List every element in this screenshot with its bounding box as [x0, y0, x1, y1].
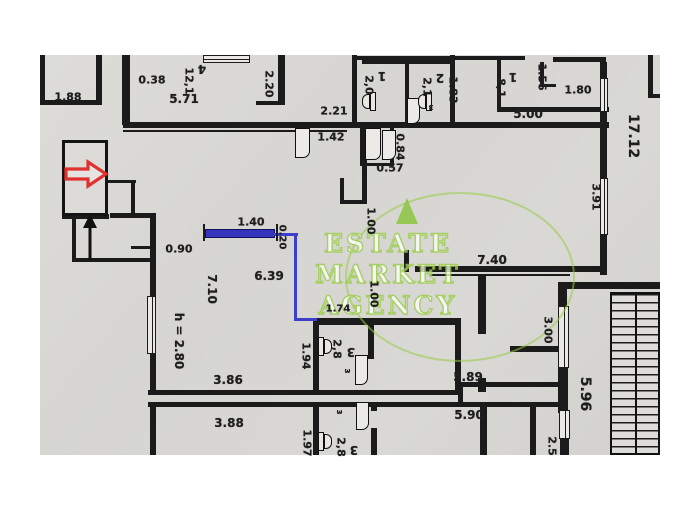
dimension-label: 5.96 — [577, 377, 593, 412]
dimension-label: 0.38 — [138, 74, 165, 87]
room-area-label: 8,1 — [495, 78, 508, 98]
dimension-label: 1.88 — [54, 91, 81, 104]
toilet-icon — [317, 431, 331, 451]
watermark-logo-icon — [396, 198, 418, 224]
dimension-label: 7.40 — [477, 253, 507, 267]
room-area-label: 2,8 — [331, 339, 344, 359]
wall-segment — [371, 428, 377, 455]
glyph-label: ɜ — [429, 102, 434, 112]
room-number-label: 1 — [509, 70, 517, 84]
wall-segment — [340, 178, 344, 202]
room-number-label: 1 — [378, 69, 386, 83]
wall-segment — [148, 390, 460, 395]
room-area-label: 2,0 — [363, 75, 376, 95]
dimension-label: 3.86 — [213, 373, 243, 387]
dimension-label: 0.20 — [277, 225, 288, 250]
dimension-label: 5.89 — [453, 370, 483, 384]
watermark-circle — [345, 192, 575, 362]
wall-segment — [131, 246, 152, 249]
dimension-label: 1.00 — [368, 280, 381, 307]
window — [559, 410, 570, 439]
entrance-arrow-icon — [63, 159, 109, 189]
blue-line — [294, 318, 317, 321]
dimension-label: 1.97 — [301, 429, 314, 456]
wall-segment — [278, 55, 285, 105]
room-number-label: 2 — [436, 71, 444, 85]
glyph-label: ɜ — [342, 369, 352, 374]
room-number-label: 3 — [347, 345, 355, 359]
room-area-label: 12,1 — [183, 67, 196, 94]
window — [203, 55, 250, 63]
dimension-label: 1.00 — [365, 207, 378, 234]
wall-segment — [371, 402, 377, 411]
dimension-label: 3.91 — [590, 183, 603, 210]
room-area-label: 2,1 — [421, 77, 434, 97]
dimension-label: 17.12 — [625, 114, 641, 158]
dimension-label: 1.40 — [237, 216, 264, 229]
wall-segment — [110, 213, 153, 218]
floor-plan-scan: ESTATE MARKET AGENCY 1.880.385.7112,142.… — [0, 0, 679, 525]
room-number-label: 4 — [198, 62, 206, 76]
door-leaf — [356, 402, 369, 430]
wall-segment — [150, 354, 156, 392]
dimension-tick — [203, 224, 205, 241]
dimension-label: 0.57 — [376, 162, 403, 175]
dimension-label: 7.10 — [205, 274, 219, 304]
wall-segment — [600, 110, 607, 180]
stairs-up-arrow-icon — [80, 214, 100, 262]
dimension-label: 3.88 — [214, 416, 244, 430]
wall-segment — [458, 382, 463, 406]
window — [600, 78, 608, 112]
door-leaf — [365, 128, 381, 160]
dimension-label: 1.83 — [447, 76, 460, 103]
wall-segment — [96, 55, 102, 105]
wall-segment — [560, 438, 569, 455]
dimension-label: 3.00 — [542, 316, 555, 343]
wall-segment — [352, 55, 357, 127]
wall-segment — [72, 218, 76, 260]
staircase — [610, 292, 660, 455]
wall-segment — [458, 402, 562, 407]
dimension-label: 0.84 — [394, 133, 407, 160]
dimension-label: 2.21 — [320, 105, 347, 118]
wall-segment — [148, 402, 460, 407]
dimension-label: 1.56 — [536, 63, 549, 90]
wall-segment — [530, 402, 536, 455]
glyph-label: ɜ — [334, 410, 344, 415]
blue-wall-marking — [205, 229, 275, 238]
wall-segment — [40, 55, 45, 105]
wall-segment — [648, 55, 653, 97]
wall-segment — [340, 200, 367, 204]
wall-segment — [150, 402, 156, 455]
wall-segment — [256, 101, 285, 105]
dimension-label: 0.90 — [165, 243, 192, 256]
door-leaf — [355, 355, 368, 385]
dimension-label: 1.80 — [564, 84, 591, 97]
window — [147, 296, 156, 354]
dimension-label: 5.00 — [513, 107, 543, 121]
blue-line — [294, 233, 297, 321]
wall-segment — [131, 180, 135, 217]
door-leaf — [295, 128, 310, 158]
wall-segment — [122, 55, 130, 125]
wall-segment — [150, 213, 156, 298]
wall-segment — [553, 57, 606, 62]
dimension-label: 1.74 — [326, 304, 351, 315]
room-number-label: 3 — [350, 443, 358, 457]
wall-segment — [452, 56, 525, 60]
dimension-label: 1.94 — [300, 342, 313, 369]
room-area-label: 2,8 — [335, 437, 348, 457]
dimension-label: 1.42 — [317, 131, 344, 144]
wall-segment — [123, 130, 347, 132]
dimension-label: 5.90 — [454, 408, 484, 422]
wall-segment — [648, 94, 660, 98]
toilet-icon — [317, 336, 331, 356]
dimension-label: 6.39 — [254, 269, 284, 283]
dimension-label: 2.5 — [546, 436, 559, 456]
note-label: h = 2.80 — [172, 313, 186, 370]
dimension-label: 2.20 — [263, 70, 276, 97]
